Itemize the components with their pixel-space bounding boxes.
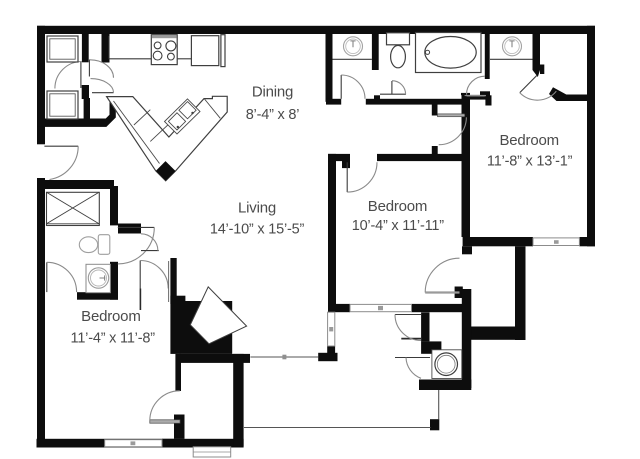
svg-text:8’-4” x 8’: 8’-4” x 8’	[246, 107, 300, 123]
svg-text:10’-4” x 11’-11”: 10’-4” x 11’-11”	[352, 218, 445, 234]
svg-text:Bedroom: Bedroom	[368, 198, 427, 215]
svg-text:14’-10” x 15’-5”: 14’-10” x 15’-5”	[210, 222, 305, 238]
svg-text:Dining: Dining	[252, 84, 293, 101]
svg-text:Bedroom: Bedroom	[81, 308, 140, 325]
svg-text:11’-8” x 13’-1”: 11’-8” x 13’-1”	[487, 154, 573, 170]
svg-text:11’-4” x 11’-8”: 11’-4” x 11’-8”	[71, 331, 156, 347]
svg-text:Living: Living	[238, 200, 276, 217]
svg-text:Bedroom: Bedroom	[499, 132, 558, 149]
